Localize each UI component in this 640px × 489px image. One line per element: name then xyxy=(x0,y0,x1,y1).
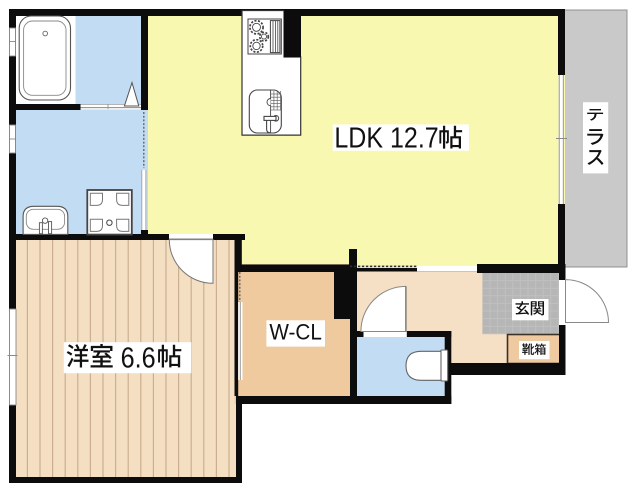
svg-text:LDK 12.7: LDK 12.7 xyxy=(334,123,438,155)
svg-text:6.6: 6.6 xyxy=(121,343,156,375)
svg-text:W-CL: W-CL xyxy=(269,320,322,345)
